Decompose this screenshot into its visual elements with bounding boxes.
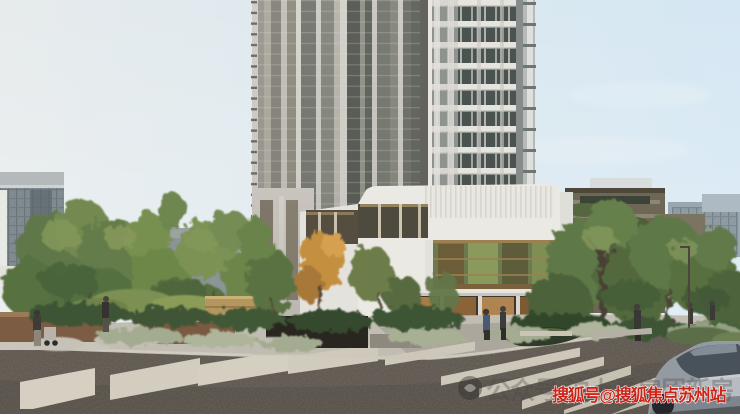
svg-text:搜狐号@搜狐焦点苏州站: 搜狐号@搜狐焦点苏州站 (552, 385, 727, 405)
